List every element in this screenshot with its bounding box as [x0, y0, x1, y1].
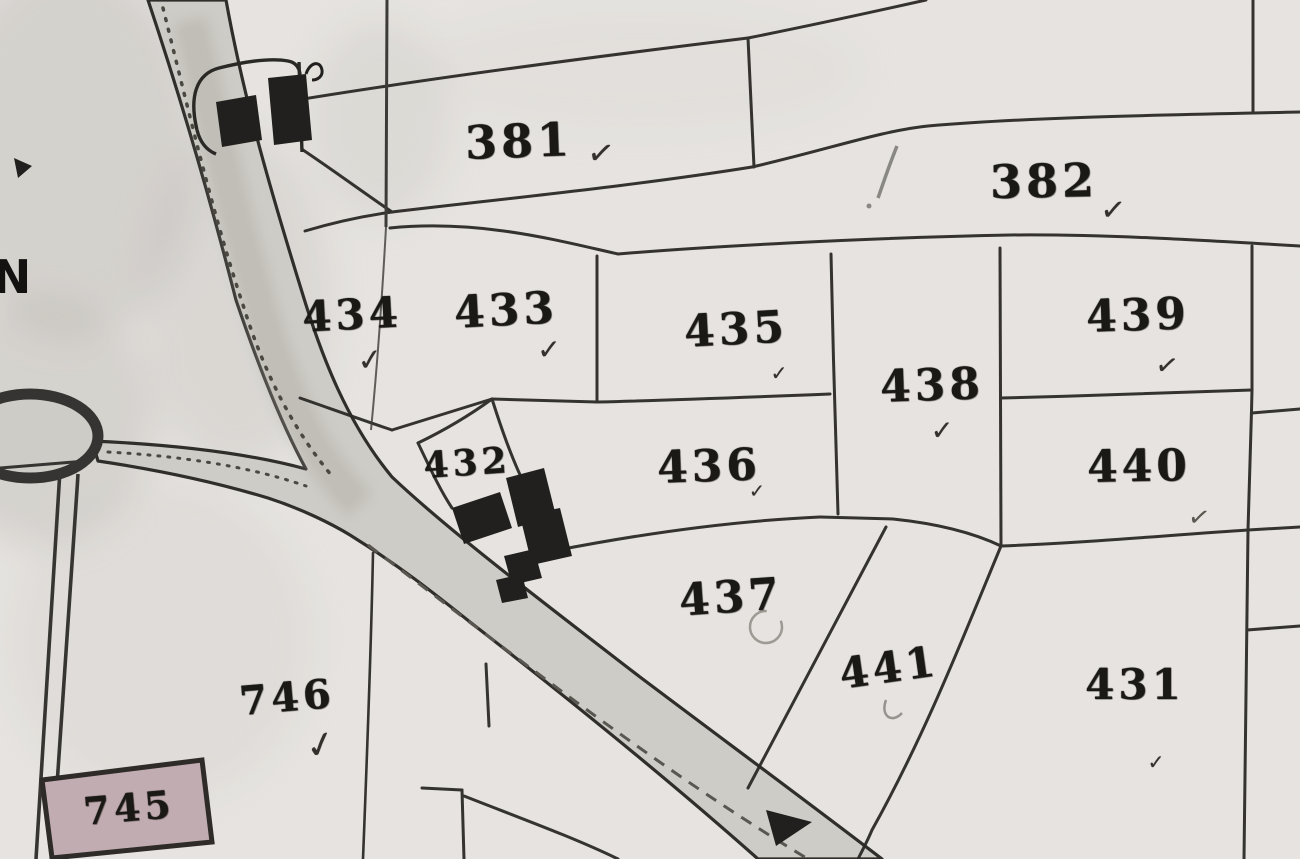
- map-linework: [0, 0, 1300, 859]
- map-canvas: N 381 ✓ 382 ✓ 434 ✓ 433 ✓ 435 ✓ 436 ✓ 43…: [0, 0, 1300, 859]
- paper-grain: [0, 0, 1300, 859]
